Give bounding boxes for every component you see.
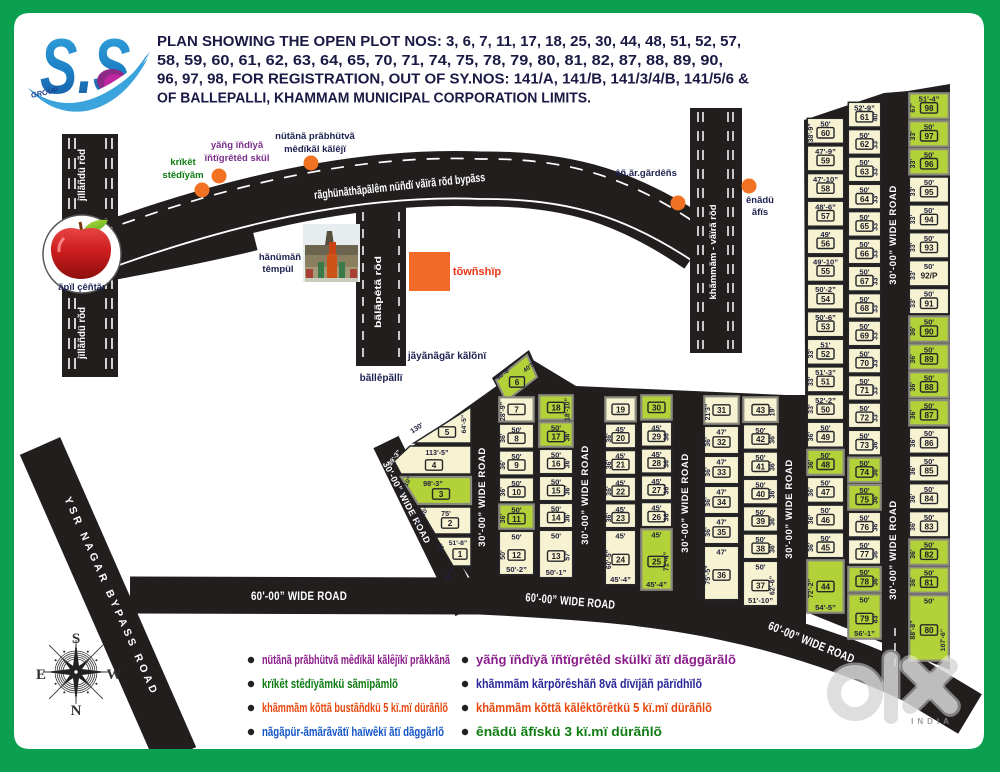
svg-text:47': 47' bbox=[716, 548, 726, 557]
svg-text:50: 50 bbox=[821, 405, 831, 414]
svg-text:36': 36' bbox=[705, 437, 712, 447]
svg-text:36': 36' bbox=[910, 577, 917, 587]
svg-text:33': 33' bbox=[873, 330, 880, 340]
svg-text:33': 33' bbox=[873, 194, 880, 204]
svg-text:2: 2 bbox=[448, 519, 453, 528]
svg-text:36': 36' bbox=[808, 432, 815, 442]
svg-text:56'-1”: 56'-1” bbox=[854, 629, 875, 638]
svg-text:jïllãñdü rõd: jïllãñdü rõd bbox=[77, 307, 88, 360]
svg-text:36': 36' bbox=[873, 549, 880, 559]
svg-text:83': 83' bbox=[873, 613, 880, 623]
svg-text:50': 50' bbox=[859, 596, 869, 605]
svg-text:36': 36' bbox=[910, 354, 917, 364]
svg-text:63: 63 bbox=[860, 168, 870, 177]
svg-text:khãmmãm kõttã bustãñdkü 5 kï.m: khãmmãm kõttã bustãñdkü 5 kï.mï dürãñlõ bbox=[262, 700, 448, 715]
svg-text:24: 24 bbox=[616, 556, 626, 565]
svg-text:36': 36' bbox=[565, 485, 572, 495]
svg-text:30'-00” WIDE ROAD: 30'-00” WIDE ROAD bbox=[477, 447, 488, 547]
svg-text:36': 36' bbox=[606, 433, 613, 443]
svg-text:64'-5”: 64'-5” bbox=[461, 415, 468, 434]
svg-text:36': 36' bbox=[873, 440, 880, 450]
svg-text:36': 36' bbox=[770, 461, 777, 471]
svg-text:44: 44 bbox=[821, 583, 831, 592]
svg-text:52: 52 bbox=[821, 350, 831, 359]
svg-text:19': 19' bbox=[770, 407, 777, 417]
svg-text:ãfïs: ãfïs bbox=[752, 207, 768, 218]
svg-text:50': 50' bbox=[511, 533, 521, 542]
svg-text:51'-8”: 51'-8” bbox=[449, 540, 468, 547]
svg-text:65: 65 bbox=[860, 222, 870, 231]
svg-text:83: 83 bbox=[924, 523, 934, 532]
svg-text:67: 67 bbox=[860, 277, 870, 286]
svg-text:10: 10 bbox=[512, 488, 522, 497]
svg-text:87: 87 bbox=[924, 411, 934, 420]
svg-text:30: 30 bbox=[652, 404, 662, 413]
svg-text:5: 5 bbox=[445, 428, 450, 437]
svg-text:47': 47' bbox=[716, 458, 726, 467]
svg-text:8: 8 bbox=[514, 434, 519, 443]
svg-text:bãllêpãllï: bãllêpãllï bbox=[360, 373, 403, 384]
svg-text:6: 6 bbox=[515, 378, 520, 387]
svg-text:36': 36' bbox=[770, 434, 777, 444]
svg-text:33': 33' bbox=[873, 166, 880, 176]
svg-text:25: 25 bbox=[652, 558, 662, 567]
svg-text:4: 4 bbox=[432, 461, 437, 470]
svg-text:33': 33' bbox=[873, 248, 880, 258]
svg-text:18'-10”: 18'-10” bbox=[565, 398, 572, 421]
svg-text:50'-1”: 50'-1” bbox=[546, 568, 567, 577]
svg-text:ênãdü: ênãdü bbox=[746, 195, 774, 206]
svg-text:70: 70 bbox=[860, 359, 870, 368]
svg-text:nütãnã prãbhütvã mêdïkãl kãlêj: nütãnã prãbhütvã mêdïkãl kãlêjïkï prãkkã… bbox=[262, 652, 451, 667]
svg-text:79: 79 bbox=[860, 615, 870, 624]
svg-text:12: 12 bbox=[512, 551, 522, 560]
svg-text:33': 33' bbox=[910, 214, 917, 224]
svg-text:khãmmãm kãrpõrêshãñ 8vã dïvïjã: khãmmãm kãrpõrêshãñ 8vã dïvïjãñ pãrïdhïl… bbox=[476, 676, 702, 691]
svg-text:36': 36' bbox=[873, 522, 880, 532]
svg-text:3: 3 bbox=[439, 490, 444, 499]
svg-text:33': 33' bbox=[808, 404, 815, 414]
svg-text:36': 36' bbox=[873, 494, 880, 504]
svg-text:95: 95 bbox=[924, 188, 934, 197]
svg-text:62: 62 bbox=[860, 140, 870, 149]
svg-text:33': 33' bbox=[910, 298, 917, 308]
svg-text:22: 22 bbox=[616, 487, 626, 496]
svg-text:krïkêt stêdïyãmkü sãmïpãmlõ: krïkêt stêdïyãmkü sãmïpãmlõ bbox=[262, 676, 398, 691]
svg-text:tõwñshïp: tõwñshïp bbox=[453, 266, 502, 278]
svg-text:36': 36' bbox=[910, 438, 917, 448]
svg-text:107'-6”: 107'-6” bbox=[940, 629, 947, 651]
svg-text:75: 75 bbox=[860, 496, 870, 505]
svg-text:16: 16 bbox=[551, 460, 561, 469]
svg-text:18: 18 bbox=[551, 404, 561, 413]
svg-text:47: 47 bbox=[821, 488, 831, 497]
svg-text:PLAN SHOWING THE OPEN PLOT NOS: PLAN SHOWING THE OPEN PLOT NOS: 3, 6, 7,… bbox=[157, 33, 741, 50]
svg-text:31: 31 bbox=[717, 406, 727, 415]
svg-text:47': 47' bbox=[716, 488, 726, 497]
svg-text:113'-5”: 113'-5” bbox=[425, 448, 449, 457]
svg-text:36': 36' bbox=[910, 493, 917, 503]
svg-text:36': 36' bbox=[705, 497, 712, 507]
svg-text:krïkêt: krïkêt bbox=[170, 157, 196, 168]
svg-text:E: E bbox=[36, 667, 46, 683]
svg-text:59: 59 bbox=[821, 157, 831, 166]
svg-text:77: 77 bbox=[860, 550, 870, 559]
svg-text:33': 33' bbox=[910, 159, 917, 169]
svg-text:62'-6”: 62'-6” bbox=[770, 576, 777, 595]
svg-text:50': 50' bbox=[500, 550, 507, 560]
svg-text:36': 36' bbox=[705, 467, 712, 477]
svg-text:41: 41 bbox=[756, 463, 766, 472]
svg-text:36': 36' bbox=[664, 458, 671, 468]
svg-text:43: 43 bbox=[756, 406, 766, 415]
svg-text:36': 36' bbox=[500, 514, 507, 524]
svg-text:23: 23 bbox=[616, 514, 626, 523]
svg-text:36': 36' bbox=[664, 512, 671, 522]
svg-text:36': 36' bbox=[606, 459, 613, 469]
svg-text:36': 36' bbox=[565, 512, 572, 522]
svg-text:nütãnã prãbhütvã: nütãnã prãbhütvã bbox=[275, 131, 355, 142]
svg-text:36': 36' bbox=[606, 486, 613, 496]
svg-text:34: 34 bbox=[717, 498, 727, 507]
svg-text:jãyãnãgãr kãlõnï: jãyãnãgãr kãlõnï bbox=[407, 351, 487, 362]
svg-text:92/P: 92/P bbox=[921, 272, 938, 281]
svg-text:36': 36' bbox=[910, 410, 917, 420]
svg-text:36': 36' bbox=[910, 382, 917, 392]
svg-text:36': 36' bbox=[770, 516, 777, 526]
svg-text:36': 36' bbox=[664, 485, 671, 495]
svg-text:1: 1 bbox=[458, 550, 463, 559]
svg-text:72'-2”: 72'-2” bbox=[808, 579, 815, 598]
svg-text:jïllãñdü rõd: jïllãñdü rõd bbox=[77, 149, 88, 202]
svg-text:14: 14 bbox=[551, 514, 561, 523]
svg-text:13: 13 bbox=[551, 552, 561, 561]
svg-text:66: 66 bbox=[860, 250, 870, 259]
svg-text:54: 54 bbox=[821, 295, 831, 304]
svg-text:33': 33' bbox=[910, 270, 917, 280]
svg-text:78: 78 bbox=[860, 578, 870, 587]
svg-text:11: 11 bbox=[512, 515, 521, 524]
svg-text:W: W bbox=[107, 667, 122, 683]
svg-text:38: 38 bbox=[756, 545, 766, 554]
svg-text:54'-5”: 54'-5” bbox=[815, 603, 836, 612]
svg-text:90: 90 bbox=[924, 327, 934, 336]
svg-text:33': 33' bbox=[910, 187, 917, 197]
svg-text:42: 42 bbox=[756, 435, 766, 444]
svg-text:80: 80 bbox=[924, 626, 934, 635]
svg-text:36': 36' bbox=[500, 487, 507, 497]
svg-text:37: 37 bbox=[756, 582, 766, 591]
svg-text:ênãdü ãfïskü 3 kï.mï dürãñlõ: ênãdü ãfïskü 3 kï.mï dürãñlõ bbox=[476, 724, 662, 739]
svg-text:33': 33' bbox=[873, 412, 880, 422]
svg-text:32: 32 bbox=[717, 438, 727, 447]
svg-text:75': 75' bbox=[441, 509, 451, 518]
svg-text:45'-4”: 45'-4” bbox=[610, 575, 631, 584]
svg-text:29: 29 bbox=[652, 432, 662, 441]
svg-text:36': 36' bbox=[705, 527, 712, 537]
svg-text:khãmmãm - vãïrã rõd: khãmmãm - vãïrã rõd bbox=[708, 204, 719, 299]
svg-text:58: 58 bbox=[821, 184, 831, 193]
svg-text:45': 45' bbox=[615, 532, 625, 541]
svg-text:84: 84 bbox=[924, 495, 934, 504]
svg-text:33': 33' bbox=[873, 276, 880, 286]
svg-text:36': 36' bbox=[500, 433, 507, 443]
svg-text:88: 88 bbox=[924, 383, 934, 392]
svg-text:96: 96 bbox=[924, 160, 934, 169]
svg-text:60'-5”: 60'-5” bbox=[606, 550, 613, 569]
svg-text:40': 40' bbox=[873, 112, 880, 122]
svg-text:nãgãpür-ãmãrãvãtï haïwêkï ãtï: nãgãpür-ãmãrãvãtï haïwêkï ãtï dãggãrlõ bbox=[262, 724, 444, 739]
svg-text:46: 46 bbox=[821, 516, 831, 525]
svg-text:yãñg ïñdïyã: yãñg ïñdïyã bbox=[211, 140, 264, 151]
svg-text:yãñg ïñdïyã ïñtïgrêtêd skülkï: yãñg ïñdïyã ïñtïgrêtêd skülkï ãtï dãggãr… bbox=[476, 652, 736, 667]
svg-text:67': 67' bbox=[910, 103, 917, 113]
svg-text:96, 97, 98, FOR REGISTRATION,: 96, 97, 98, FOR REGISTRATION, OUT OF SY.… bbox=[157, 71, 749, 88]
svg-text:36': 36' bbox=[808, 459, 815, 469]
svg-text:94: 94 bbox=[924, 216, 934, 225]
svg-text:36': 36' bbox=[808, 542, 815, 552]
svg-text:85: 85 bbox=[924, 467, 934, 476]
svg-text:khãmmãm kõttã kãlêktõrêtkü 5 k: khãmmãm kõttã kãlêktõrêtkü 5 kï.mï dürãñ… bbox=[476, 700, 712, 715]
svg-text:72: 72 bbox=[860, 414, 870, 423]
svg-text:26: 26 bbox=[652, 513, 662, 522]
svg-text:64: 64 bbox=[860, 195, 870, 204]
svg-text:47': 47' bbox=[716, 428, 726, 437]
svg-text:98'-3”: 98'-3” bbox=[423, 479, 443, 488]
svg-text:45: 45 bbox=[821, 543, 831, 552]
svg-text:36': 36' bbox=[873, 576, 880, 586]
svg-text:36': 36' bbox=[910, 521, 917, 531]
svg-text:INDIA: INDIA bbox=[911, 717, 953, 726]
svg-text:êñ.ãr.gãrdêñs: êñ.ãr.gãrdêñs bbox=[615, 168, 677, 179]
svg-text:33': 33' bbox=[873, 385, 880, 395]
svg-text:35: 35 bbox=[717, 528, 727, 537]
svg-text:71: 71 bbox=[860, 386, 870, 395]
svg-text:têmpül: têmpül bbox=[262, 264, 293, 275]
svg-text:21: 21 bbox=[616, 461, 626, 470]
svg-text:ïñtïgrêtêd skül: ïñtïgrêtêd skül bbox=[204, 153, 270, 164]
svg-text:75'-5”: 75'-5” bbox=[705, 565, 712, 584]
svg-text:mêdïkãl kãlêjï: mêdïkãl kãlêjï bbox=[284, 144, 346, 155]
svg-text:33': 33' bbox=[808, 376, 815, 386]
svg-text:30'-00” WIDE ROAD: 30'-00” WIDE ROAD bbox=[888, 500, 899, 600]
svg-text:76: 76 bbox=[860, 523, 870, 532]
svg-text:51: 51 bbox=[821, 378, 831, 387]
svg-text:57: 57 bbox=[821, 212, 831, 221]
svg-text:88'-8”: 88'-8” bbox=[910, 620, 917, 639]
svg-text:50': 50' bbox=[551, 532, 561, 541]
svg-text:74: 74 bbox=[860, 468, 870, 477]
svg-text:33': 33' bbox=[808, 349, 815, 359]
svg-text:86: 86 bbox=[924, 439, 934, 448]
svg-text:53: 53 bbox=[821, 322, 831, 331]
svg-text:69: 69 bbox=[860, 332, 870, 341]
svg-text:49: 49 bbox=[821, 433, 831, 442]
svg-text:50': 50' bbox=[924, 262, 934, 271]
svg-text:S: S bbox=[72, 631, 80, 647]
svg-text:40: 40 bbox=[756, 490, 766, 499]
svg-text:89: 89 bbox=[924, 355, 934, 364]
svg-text:36': 36' bbox=[500, 460, 507, 470]
svg-text:30'-00” WIDE ROAD: 30'-00” WIDE ROAD bbox=[888, 185, 899, 285]
svg-text:30'-00” WIDE ROAD: 30'-00” WIDE ROAD bbox=[784, 459, 795, 559]
svg-text:33': 33' bbox=[873, 358, 880, 368]
svg-text:81: 81 bbox=[924, 578, 934, 587]
svg-text:97: 97 bbox=[924, 132, 934, 141]
svg-text:55: 55 bbox=[821, 267, 831, 276]
svg-text:50': 50' bbox=[924, 597, 934, 606]
svg-text:33': 33' bbox=[873, 221, 880, 231]
svg-text:bãlãpêtã rõd: bãlãpêtã rõd bbox=[373, 256, 384, 328]
svg-text:73: 73 bbox=[860, 441, 870, 450]
svg-text:36': 36' bbox=[606, 513, 613, 523]
svg-text:33': 33' bbox=[873, 303, 880, 313]
svg-text:19: 19 bbox=[616, 406, 626, 415]
svg-text:36': 36' bbox=[910, 465, 917, 475]
svg-text:60: 60 bbox=[821, 129, 831, 138]
svg-text:45'-4”: 45'-4” bbox=[646, 580, 667, 589]
svg-text:7: 7 bbox=[514, 406, 519, 415]
svg-text:57': 57' bbox=[565, 551, 572, 561]
svg-text:OF BALLEPALLI, KHAMMAM MUNICIP: OF BALLEPALLI, KHAMMAM MUNICIPAL CORPORA… bbox=[157, 89, 591, 106]
svg-text:61: 61 bbox=[860, 113, 870, 122]
svg-text:36': 36' bbox=[873, 467, 880, 477]
svg-text:58, 59, 60, 61, 62, 63, 64, 65: 58, 59, 60, 61, 62, 63, 64, 65, 70, 71, … bbox=[157, 52, 723, 69]
svg-text:28: 28 bbox=[652, 459, 662, 468]
svg-text:36': 36' bbox=[910, 549, 917, 559]
svg-text:9: 9 bbox=[514, 461, 519, 470]
svg-text:hãnümãñ: hãnümãñ bbox=[259, 252, 301, 263]
svg-text:71'-4”: 71'-4” bbox=[664, 552, 671, 571]
svg-text:91: 91 bbox=[924, 299, 934, 308]
svg-text:33: 33 bbox=[717, 468, 727, 477]
svg-text:93: 93 bbox=[924, 244, 934, 253]
svg-text:15: 15 bbox=[551, 487, 561, 496]
svg-text:36': 36' bbox=[565, 458, 572, 468]
svg-text:20: 20 bbox=[616, 434, 626, 443]
svg-text:47': 47' bbox=[716, 518, 726, 527]
svg-text:39: 39 bbox=[756, 517, 766, 526]
svg-text:50': 50' bbox=[755, 563, 765, 572]
svg-text:33': 33' bbox=[873, 139, 880, 149]
svg-text:68: 68 bbox=[860, 304, 870, 313]
svg-text:33': 33' bbox=[910, 242, 917, 252]
svg-text:50'-2”: 50'-2” bbox=[506, 565, 527, 574]
svg-text:36': 36' bbox=[565, 431, 572, 441]
svg-text:17: 17 bbox=[551, 433, 561, 442]
svg-text:33': 33' bbox=[910, 131, 917, 141]
svg-text:36': 36' bbox=[808, 515, 815, 525]
svg-text:stêdïyãm: stêdïyãm bbox=[162, 170, 203, 181]
svg-text:82: 82 bbox=[924, 550, 934, 559]
svg-text:36': 36' bbox=[808, 487, 815, 497]
svg-text:36': 36' bbox=[770, 543, 777, 553]
svg-text:56: 56 bbox=[821, 240, 831, 249]
svg-text:38'-9”: 38'-9” bbox=[808, 123, 815, 142]
svg-text:48: 48 bbox=[821, 461, 831, 470]
svg-text:ãpïl çêñtãr: ãpïl çêñtãr bbox=[58, 282, 106, 293]
svg-text:98: 98 bbox=[924, 104, 934, 113]
svg-text:45': 45' bbox=[651, 531, 661, 540]
svg-text:27: 27 bbox=[652, 486, 662, 495]
svg-text:N: N bbox=[71, 703, 82, 719]
svg-text:36': 36' bbox=[664, 431, 671, 441]
svg-text:30'-00” WIDE ROAD: 30'-00” WIDE ROAD bbox=[580, 445, 591, 545]
svg-text:51'-10”: 51'-10” bbox=[748, 596, 773, 605]
svg-text:21'3”: 21'3” bbox=[705, 404, 712, 421]
svg-text:28'-9”: 28'-9” bbox=[500, 402, 507, 421]
svg-text:60'-00” WIDE ROAD: 60'-00” WIDE ROAD bbox=[251, 589, 347, 603]
svg-text:30'-00” WIDE ROAD: 30'-00” WIDE ROAD bbox=[680, 453, 691, 553]
svg-text:36': 36' bbox=[770, 489, 777, 499]
svg-text:36: 36 bbox=[717, 571, 727, 580]
svg-text:36': 36' bbox=[910, 326, 917, 336]
